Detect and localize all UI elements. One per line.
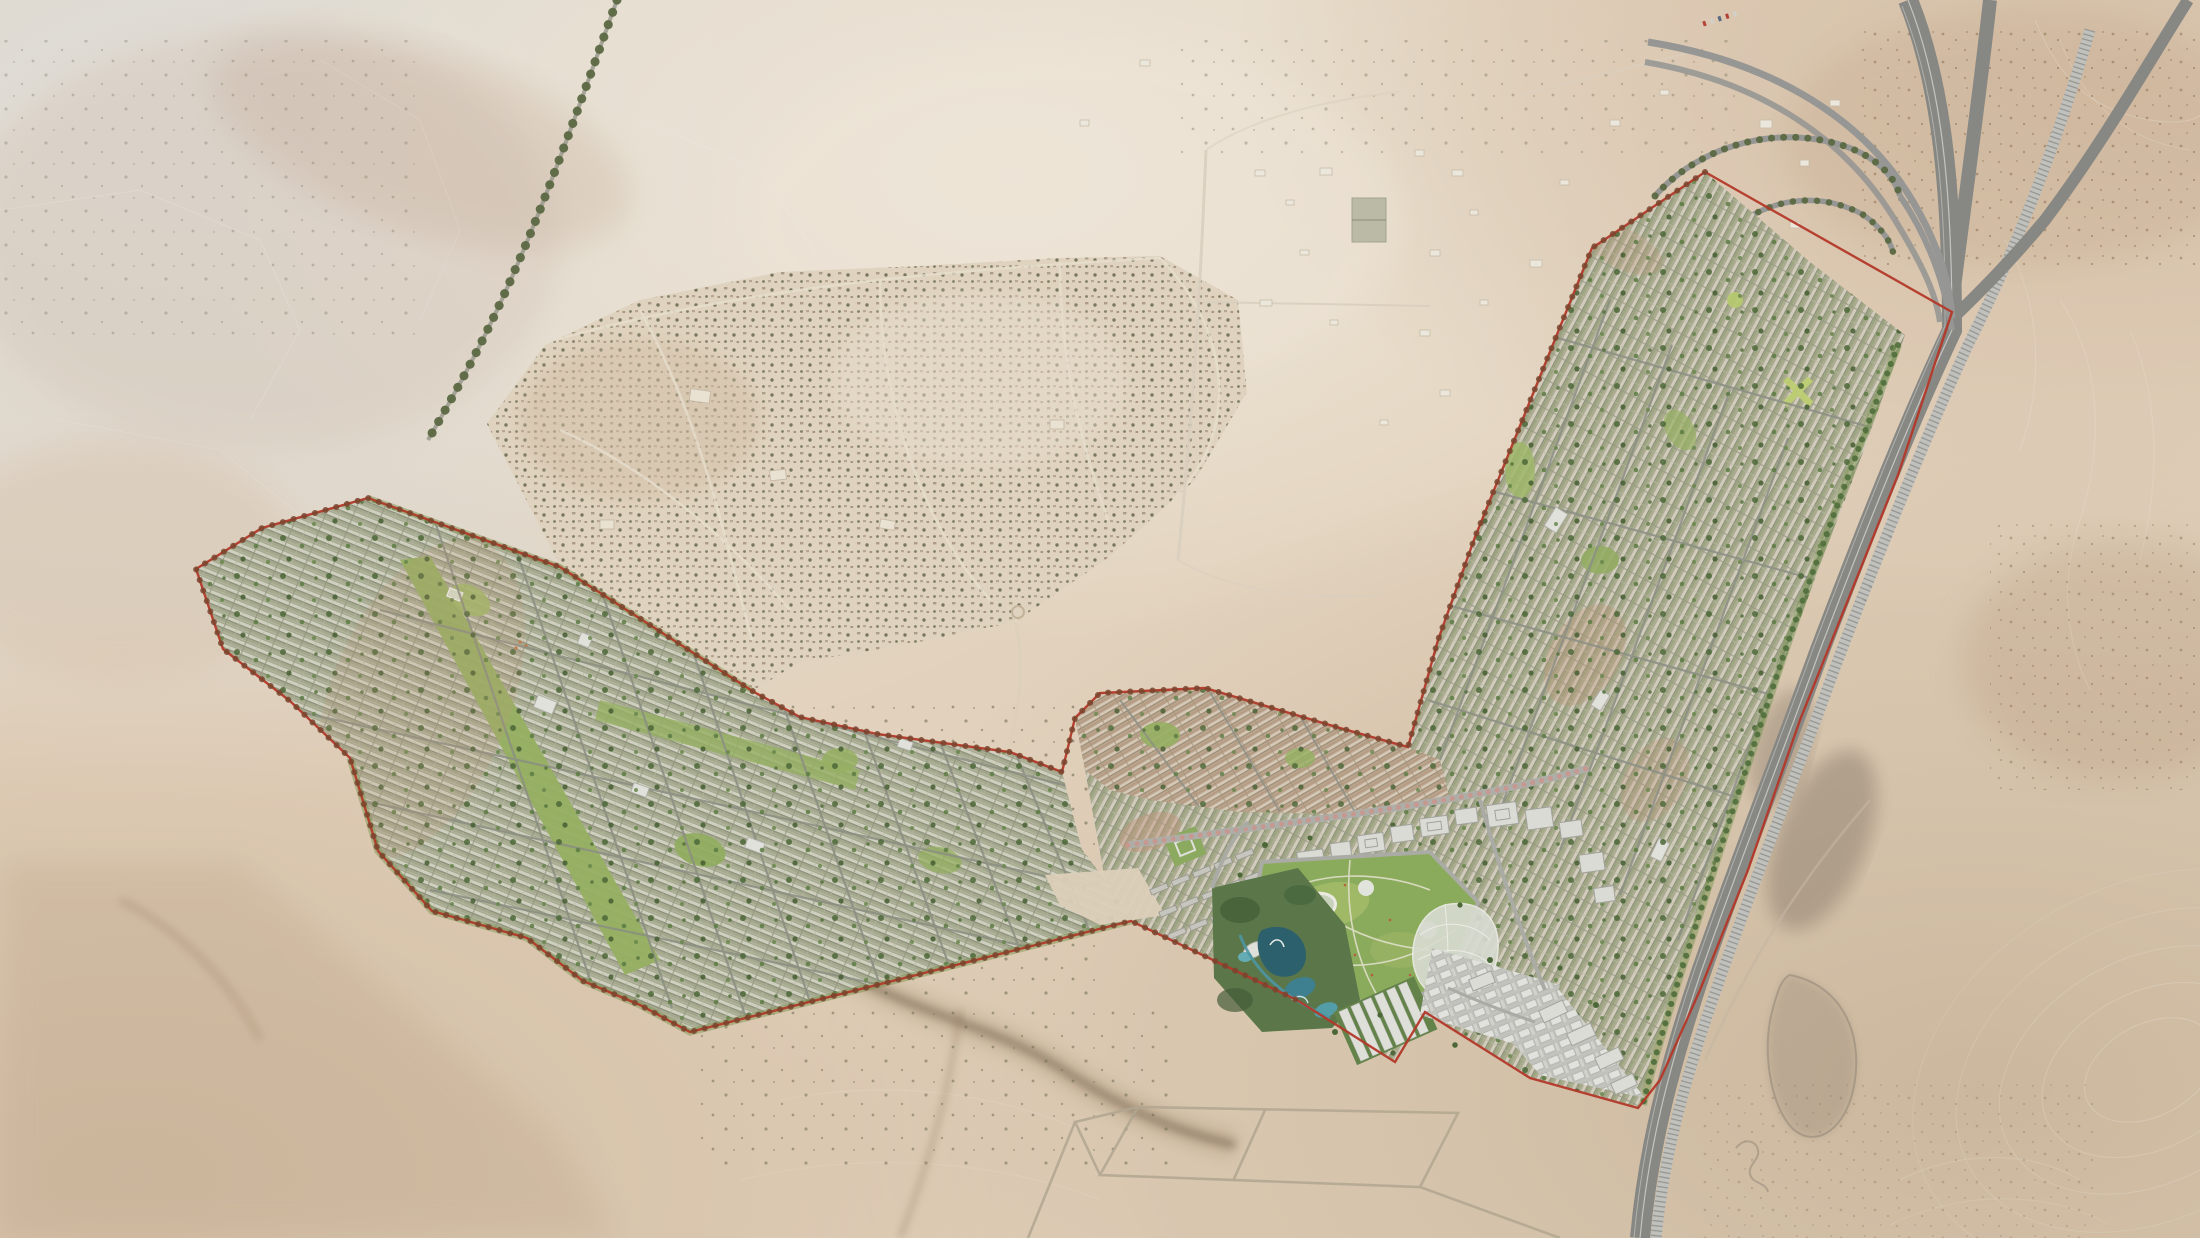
aerial-masterplan-render	[0, 0, 2200, 1238]
vignette-overlay	[0, 0, 2200, 1238]
masterplan-canvas	[0, 0, 2200, 1238]
